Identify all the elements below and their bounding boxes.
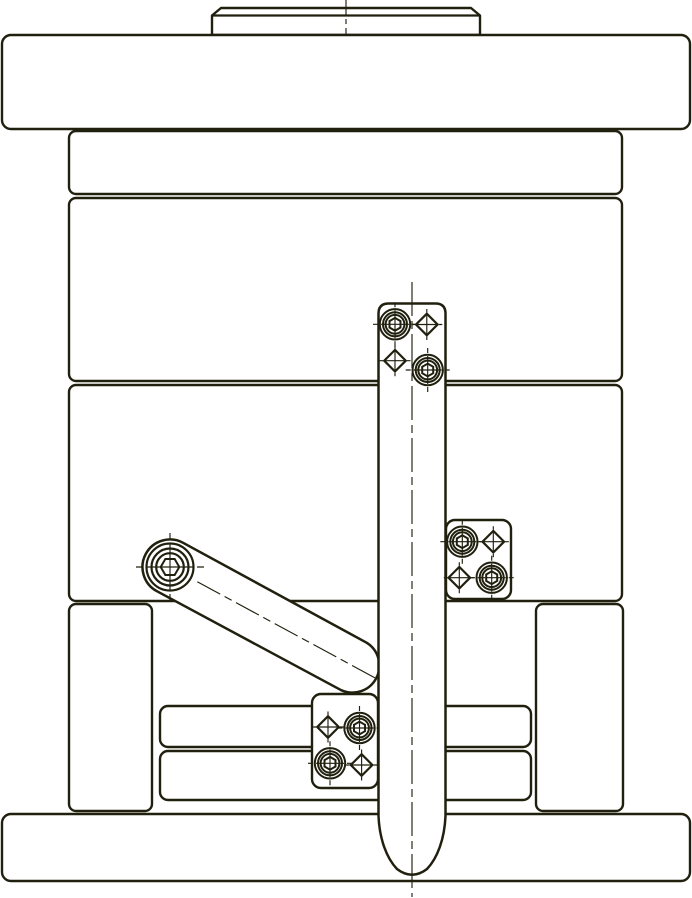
lower-latch-block <box>308 694 382 788</box>
mold-assembly-drawing <box>0 0 692 898</box>
side-latch-block <box>440 520 513 600</box>
bottom-clamping-plate <box>2 814 690 881</box>
right-spacer-block <box>536 604 623 811</box>
upper-mold-plate <box>69 131 622 194</box>
left-spacer-block <box>69 604 152 811</box>
technical-drawing-canvas <box>0 0 692 898</box>
top-clamping-plate <box>2 35 690 129</box>
cavity-plate <box>69 198 622 381</box>
latch-bar <box>373 282 450 897</box>
